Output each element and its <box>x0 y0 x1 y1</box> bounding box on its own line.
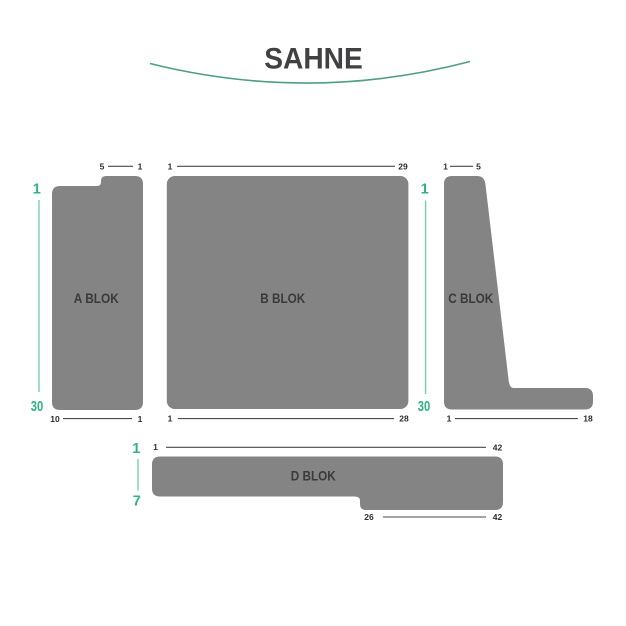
svg-text:7: 7 <box>133 494 141 510</box>
svg-text:10: 10 <box>50 414 60 424</box>
svg-text:A BLOK: A BLOK <box>74 290 119 306</box>
svg-text:1: 1 <box>33 182 41 198</box>
svg-text:42: 42 <box>493 512 503 522</box>
svg-text:18: 18 <box>583 414 593 424</box>
svg-text:1: 1 <box>153 442 158 452</box>
svg-text:30: 30 <box>418 399 431 415</box>
svg-text:1: 1 <box>168 414 173 424</box>
svg-text:SAHNE: SAHNE <box>264 43 363 76</box>
svg-text:1: 1 <box>447 414 452 424</box>
svg-text:30: 30 <box>31 399 44 415</box>
svg-text:1: 1 <box>138 162 143 172</box>
svg-text:C BLOK: C BLOK <box>448 290 493 306</box>
svg-text:28: 28 <box>399 414 409 424</box>
svg-text:1: 1 <box>168 162 173 172</box>
svg-text:B BLOK: B BLOK <box>260 290 305 306</box>
svg-text:1: 1 <box>138 414 143 424</box>
svg-text:26: 26 <box>364 512 374 522</box>
svg-text:1: 1 <box>421 182 429 198</box>
svg-text:D BLOK: D BLOK <box>291 468 336 484</box>
svg-text:1: 1 <box>132 441 140 457</box>
svg-text:5: 5 <box>100 162 105 172</box>
svg-text:29: 29 <box>398 162 408 172</box>
svg-text:42: 42 <box>493 443 503 453</box>
svg-text:5: 5 <box>476 162 481 172</box>
svg-text:1: 1 <box>443 162 448 172</box>
